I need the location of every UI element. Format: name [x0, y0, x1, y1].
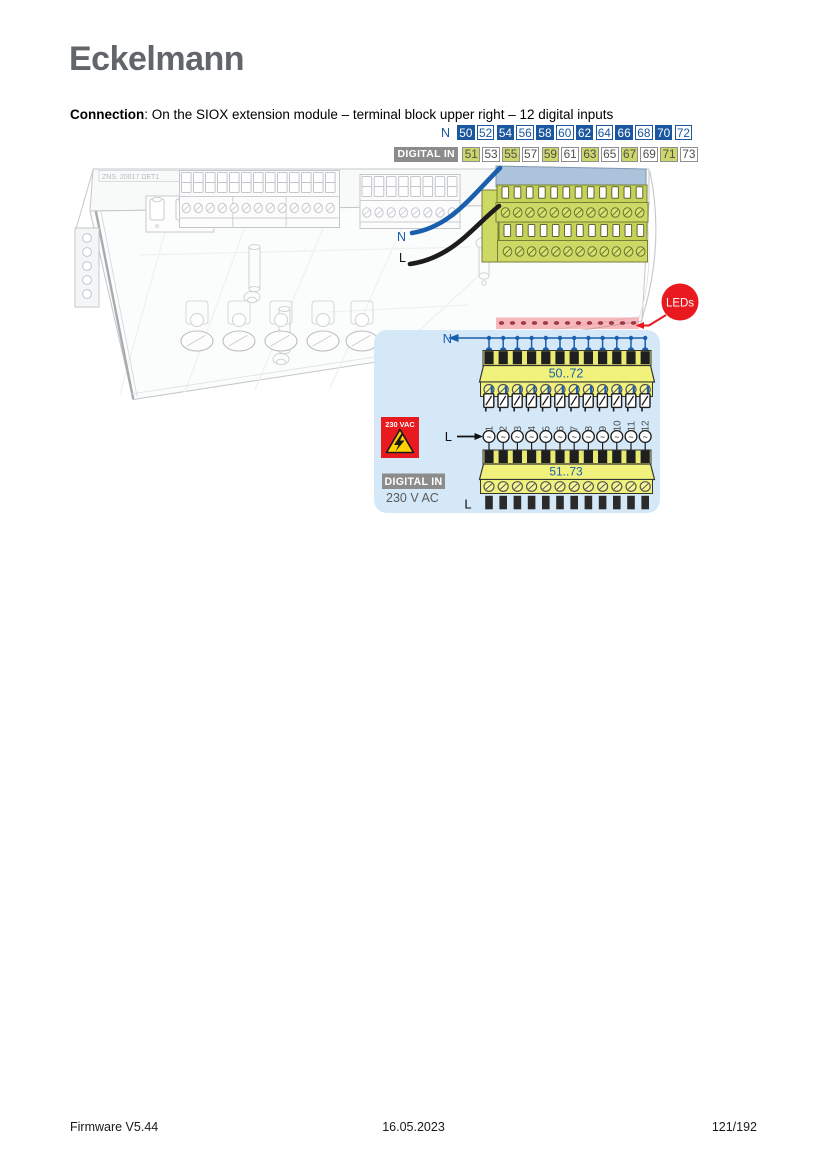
connection-diagram: ZNS. 20017 DET1	[0, 0, 827, 560]
terminal-di-67: 67	[621, 147, 639, 162]
terminal-n-62: 62	[576, 125, 594, 140]
warning-230vac-icon: 230 VAC	[381, 417, 419, 458]
footer-page-number: 121/192	[712, 1120, 757, 1134]
terminal-di-59: 59	[542, 147, 560, 162]
svg-text:~: ~	[600, 432, 605, 442]
terminal-n-54: 54	[497, 125, 515, 140]
svg-text:~: ~	[515, 432, 520, 442]
upper-block-range: 50..72	[549, 367, 584, 381]
terminal-n-52: 52	[477, 125, 495, 140]
leds-callout: LEDs	[636, 284, 699, 330]
module-terminal-block	[482, 166, 648, 262]
terminal-n-68: 68	[635, 125, 653, 140]
terminal-n-66: 66	[615, 125, 633, 140]
digital-in-terminal-row: DIGITAL IN 515355575961636567697173	[394, 147, 698, 162]
manual-page: Eckelmann Connection: On the SIOX extens…	[0, 0, 827, 1169]
svg-text:~: ~	[501, 432, 506, 442]
terminal-di-69: 69	[640, 147, 658, 162]
terminal-n-72: 72	[675, 125, 693, 140]
terminal-di-57: 57	[522, 147, 540, 162]
channel-number-10: 10	[612, 420, 623, 432]
svg-text:~: ~	[486, 432, 491, 442]
voltage-label: 230 V AC	[386, 491, 439, 505]
drawing-plate-label: ZNS. 20017 DET1	[102, 174, 159, 181]
svg-text:~: ~	[543, 432, 548, 442]
svg-text:~: ~	[529, 432, 534, 442]
terminal-n-70: 70	[655, 125, 673, 140]
callout-l-label: L	[445, 429, 452, 444]
terminal-n-56: 56	[516, 125, 534, 140]
n-terminal-row: N 505254565860626466687072	[441, 125, 692, 140]
leds-label: LEDs	[666, 298, 694, 310]
svg-text:~: ~	[614, 432, 619, 442]
terminal-n-50: 50	[457, 125, 475, 140]
wire-l-label: L	[399, 251, 406, 265]
bottom-l-label: L	[464, 497, 471, 512]
terminal-di-53: 53	[482, 147, 500, 162]
n-terminal-cells: 505254565860626466687072	[457, 125, 692, 140]
callout-panel: N 50..72 123456789101112 L ~~~~~~~~~~~~	[374, 330, 660, 513]
terminal-di-65: 65	[601, 147, 619, 162]
svg-text:~: ~	[572, 432, 577, 442]
svg-text:~: ~	[628, 432, 633, 442]
callout-lower-block: 51..73	[480, 450, 655, 494]
terminal-di-61: 61	[561, 147, 579, 162]
svg-text:~: ~	[643, 432, 648, 442]
digital-terminal-cells: 515355575961636567697173	[462, 147, 697, 162]
terminal-di-63: 63	[581, 147, 599, 162]
lower-block-range: 51..73	[549, 465, 583, 479]
digital-in-row-badge: DIGITAL IN	[394, 147, 458, 162]
terminal-di-51: 51	[462, 147, 480, 162]
terminal-di-73: 73	[680, 147, 698, 162]
terminal-n-60: 60	[556, 125, 574, 140]
svg-text:~: ~	[586, 432, 591, 442]
warning-label: 230 VAC	[385, 420, 415, 429]
footer-date: 16.05.2023	[0, 1120, 827, 1134]
wire-n-label: N	[397, 230, 406, 244]
terminal-n-58: 58	[536, 125, 554, 140]
terminal-n-64: 64	[596, 125, 614, 140]
svg-text:~: ~	[557, 432, 562, 442]
channel-number-11: 11	[627, 421, 638, 432]
n-row-label: N	[441, 126, 450, 140]
terminal-di-71: 71	[660, 147, 678, 162]
channel-number-12: 12	[641, 420, 652, 432]
terminal-di-55: 55	[502, 147, 520, 162]
callout-digital-in-badge: DIGITAL IN	[385, 476, 443, 488]
